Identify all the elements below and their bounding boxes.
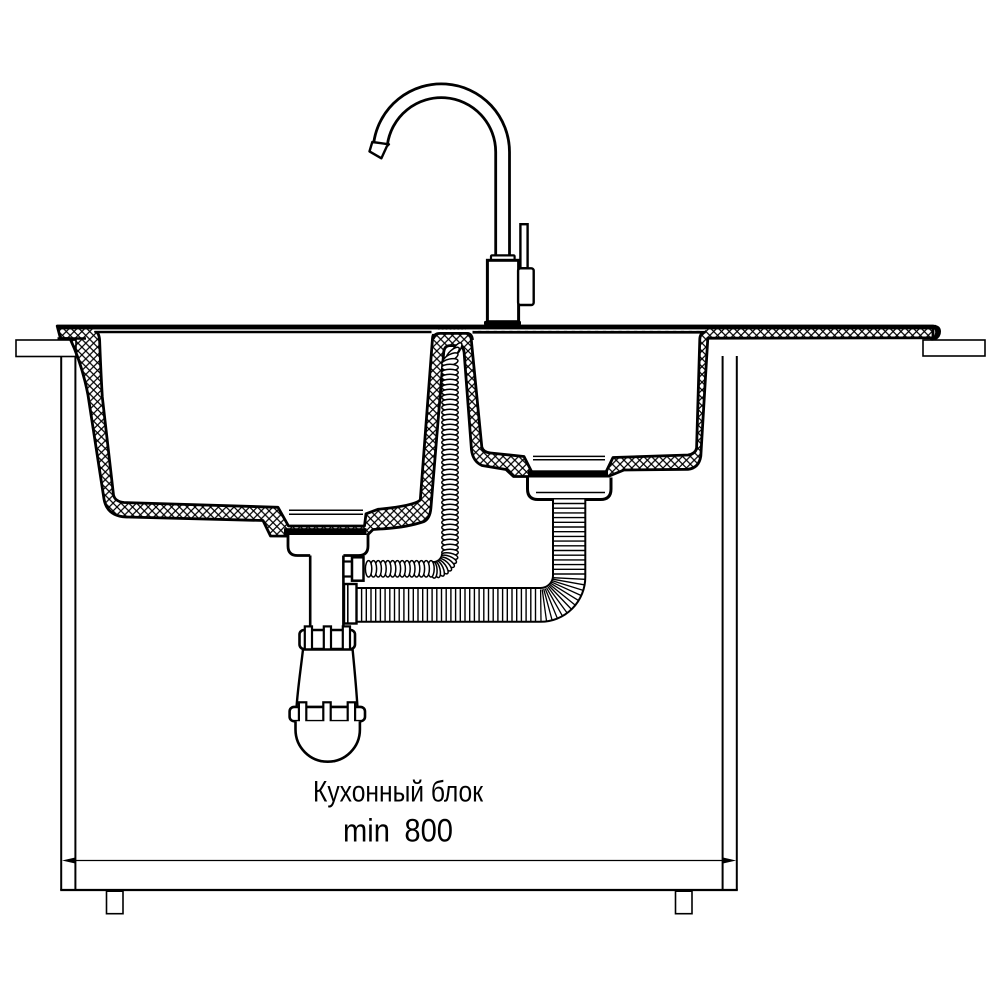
svg-text:Кухонный блок: Кухонный блок: [313, 776, 484, 809]
svg-text:min 800: min 800: [343, 813, 453, 849]
